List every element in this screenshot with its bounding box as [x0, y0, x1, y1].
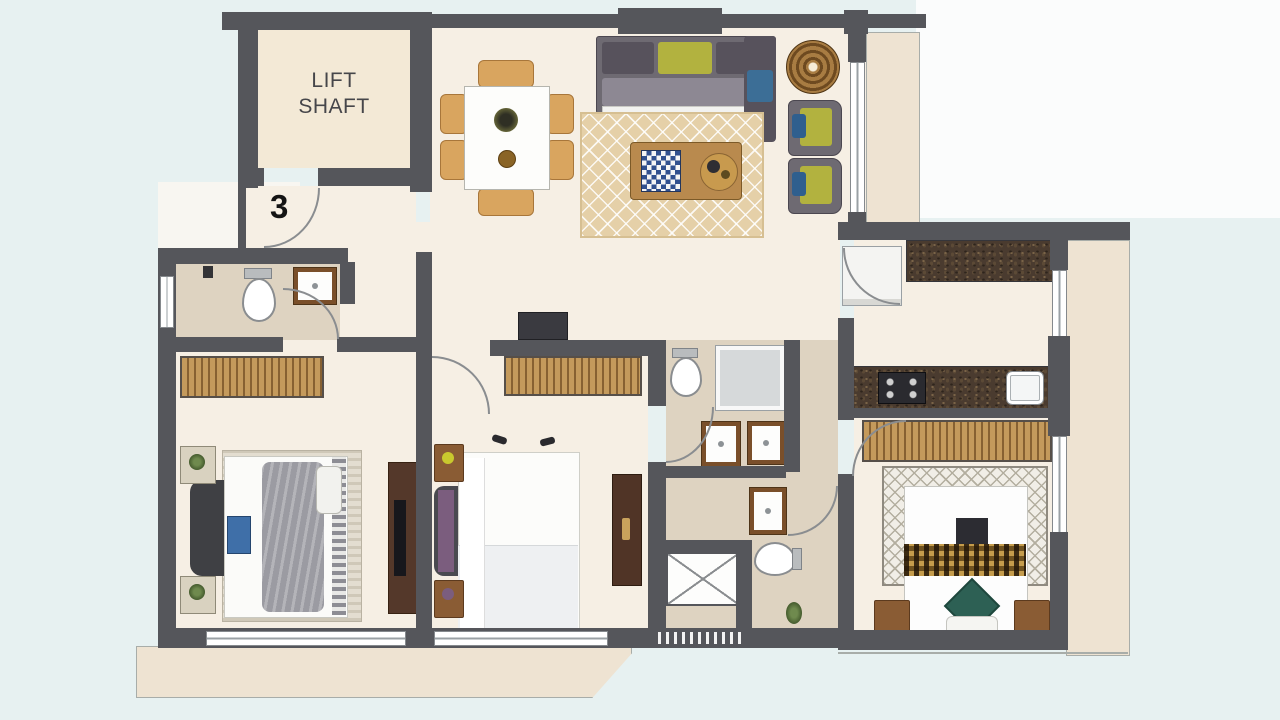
- lift-wall-bottom-b: [318, 168, 432, 186]
- wing-top-wall: [158, 248, 348, 264]
- deck-right: [1066, 240, 1130, 656]
- master-left-wall: [838, 474, 854, 648]
- toilet-3: [754, 542, 796, 576]
- bedroom-left-pillow: [316, 466, 342, 514]
- kitchen-counter-top: [906, 240, 1060, 282]
- paper-background: [916, 0, 1280, 218]
- bedroom-middle-top-wall: [490, 340, 650, 356]
- bathroom1-bottom-wall-b: [337, 337, 416, 352]
- dining-chair-right-1: [546, 94, 574, 134]
- sofa-cushion-middle: [658, 42, 712, 74]
- hob: [878, 372, 926, 404]
- lift-wall-bottom-a: [238, 168, 264, 186]
- living-top-wall-thick: [618, 8, 722, 34]
- kitchen-right-window: [1052, 270, 1067, 338]
- bedroom-left-wardrobe: [180, 356, 324, 398]
- round-side-table: [786, 40, 840, 94]
- right-wall-a: [1050, 240, 1068, 270]
- bathroom-divider-wall: [666, 466, 786, 478]
- bedroom-left-headboard: [190, 480, 224, 576]
- serving-tray: [700, 153, 738, 191]
- floor-plan: LIFT SHAFT 3: [0, 0, 1280, 720]
- wash-basin-4: [750, 488, 786, 534]
- toilet-3-tank: [792, 548, 802, 570]
- dining-chair-bottom: [478, 188, 534, 216]
- bedroom-left-tv: [394, 500, 406, 576]
- foyer-wall-thin: [238, 186, 246, 252]
- sofa-seat: [602, 78, 766, 106]
- master-bottom-wall: [838, 630, 1068, 650]
- nightstand-lamp-yellow: [442, 452, 454, 464]
- bathroom1-right-wall: [340, 262, 355, 304]
- lobby-wall-stub: [222, 12, 238, 30]
- tray-cup: [721, 170, 730, 179]
- lift-wall-top: [238, 12, 432, 30]
- wash-basin-3: [748, 422, 784, 464]
- armchair-1-pillow: [792, 114, 806, 138]
- living-right-wall-a: [848, 26, 866, 62]
- kitchen-counter-edge-wall: [838, 408, 1050, 418]
- dresser-handle: [622, 518, 630, 540]
- master-right-window: [1052, 436, 1067, 534]
- middle-left-wall: [416, 252, 432, 642]
- bedroom-middle-right-wall-a: [648, 340, 666, 406]
- bedroom-left-duvet: [262, 462, 324, 612]
- master-bed-folded-throw: [956, 518, 988, 544]
- armchair-2-pillow: [792, 172, 806, 196]
- bedroom-middle-headboard-cushion: [438, 490, 454, 572]
- dining-chair-top: [478, 60, 534, 88]
- bedroom-middle-wardrobe: [504, 356, 642, 396]
- sofa-cushion-left: [602, 42, 654, 74]
- plant-nightstand-top: [189, 454, 205, 470]
- bathroom1-bottom-wall-a: [176, 337, 283, 352]
- bathroom-right-wall: [784, 340, 800, 472]
- nightstand-lamp-purple: [442, 588, 454, 600]
- lift-wall-right: [410, 12, 432, 192]
- dining-table: [464, 86, 550, 190]
- master-bed-blanket: [904, 544, 1026, 576]
- chaise-pillow: [747, 70, 773, 102]
- unit-number: 3: [270, 188, 288, 226]
- living-right-window: [850, 62, 865, 214]
- toilet-2: [670, 357, 702, 397]
- lift-shaft-label: LIFT SHAFT: [284, 68, 384, 121]
- dining-chair-right-2: [546, 140, 574, 180]
- shaft-top-wall: [648, 540, 738, 552]
- bedroom-left-window: [206, 631, 406, 646]
- shower-area: [716, 346, 784, 410]
- utility-shaft: [666, 552, 740, 606]
- kitchen-top-wall: [838, 222, 1130, 240]
- deck-living-right: [866, 32, 920, 224]
- kitchen-left-wall: [838, 318, 854, 420]
- chessboard: [641, 150, 681, 192]
- tray-teapot: [707, 160, 720, 173]
- bathroom-shelf: [203, 266, 213, 278]
- dining-bowl: [498, 150, 516, 168]
- deck-bottom: [136, 646, 632, 698]
- living-lower-floor: [416, 222, 840, 342]
- kitchen-sink: [1006, 371, 1044, 405]
- tv-unit-living-side: [518, 312, 568, 340]
- right-wall-b: [1048, 336, 1070, 436]
- bedroom-left-folded-blanket: [227, 516, 251, 554]
- master-bottom-outline: [838, 652, 1128, 654]
- lift-wall-left: [238, 12, 258, 188]
- bathroom-left-window: [160, 276, 174, 328]
- plant-nightstand-bottom: [189, 584, 205, 600]
- bedroom-middle-window: [434, 631, 608, 646]
- toilet-1: [242, 278, 276, 322]
- dining-centerpiece-flowers: [494, 108, 518, 132]
- shaft-right-wall: [736, 540, 752, 628]
- bathroom-plant: [786, 602, 802, 624]
- shaft-louver-grill: [658, 632, 744, 644]
